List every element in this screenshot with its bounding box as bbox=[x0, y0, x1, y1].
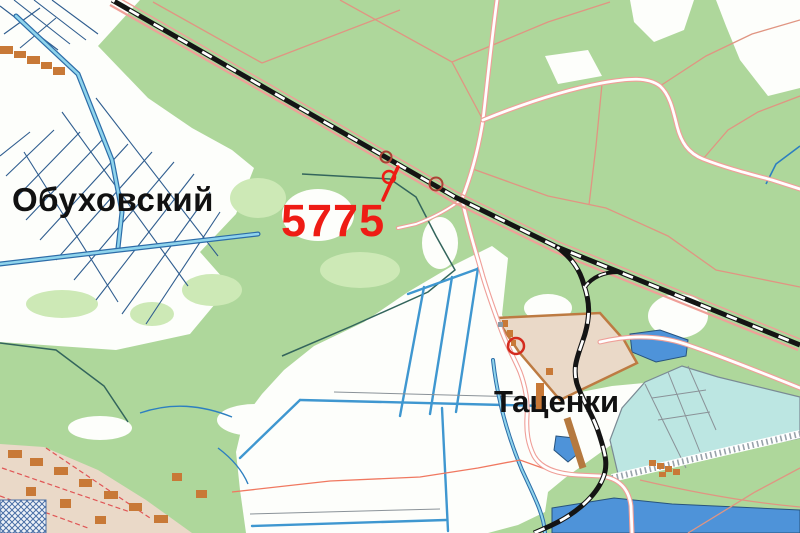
marker-label-5775: 5775 bbox=[281, 198, 385, 243]
settlement-label-obukhovsky: Обуховский bbox=[12, 183, 214, 216]
map-layers bbox=[0, 0, 800, 533]
settlement-label-tatsenki: Таценки bbox=[494, 386, 619, 417]
map-canvas[interactable]: Обуховский Таценки 5775 bbox=[0, 0, 800, 533]
church-icon bbox=[498, 322, 503, 327]
